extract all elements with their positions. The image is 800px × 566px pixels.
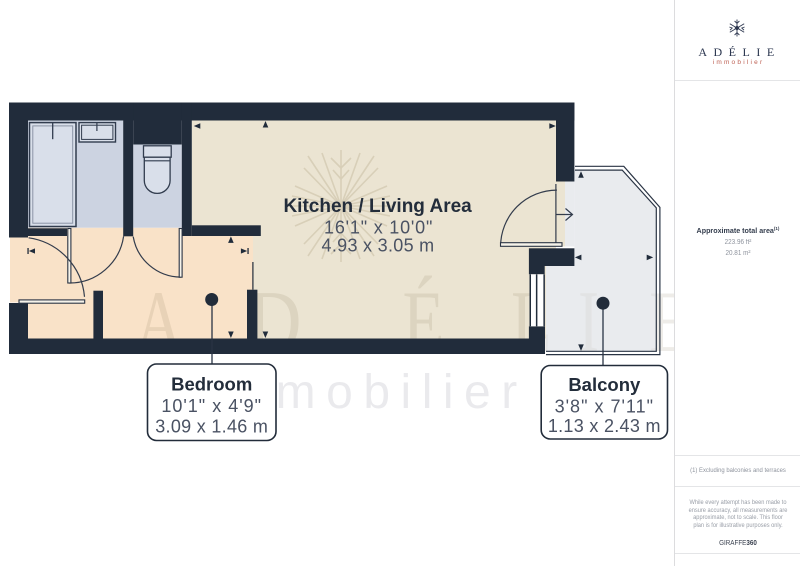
svg-text:3'8" x 7'11": 3'8" x 7'11" xyxy=(555,397,654,417)
svg-text:A: A xyxy=(135,273,183,370)
svg-text:É: É xyxy=(403,274,445,371)
svg-text:1.13 x 2.43 m: 1.13 x 2.43 m xyxy=(548,416,661,436)
svg-text:10'1" x 4'9": 10'1" x 4'9" xyxy=(161,396,262,416)
svg-text:16'1" x 10'0": 16'1" x 10'0" xyxy=(324,218,433,238)
svg-text:3.09 x 1.46 m: 3.09 x 1.46 m xyxy=(155,417,268,437)
svg-text:Balcony: Balcony xyxy=(568,374,641,395)
svg-text:Bedroom: Bedroom xyxy=(171,374,252,395)
svg-text:4.93 x 3.05 m: 4.93 x 3.05 m xyxy=(322,236,435,256)
svg-text:Kitchen / Living Area: Kitchen / Living Area xyxy=(283,196,472,217)
